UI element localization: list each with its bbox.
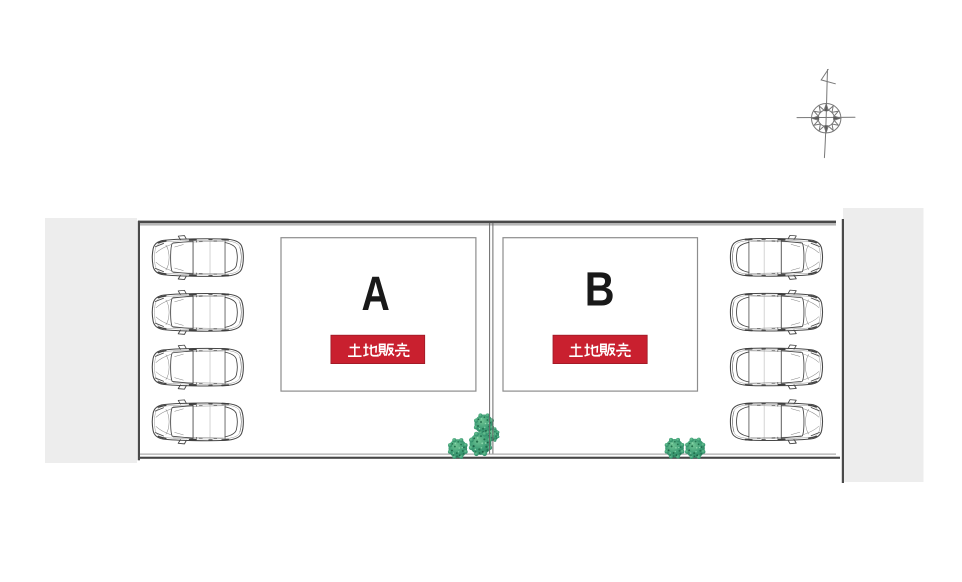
svg-text:A: A — [361, 268, 389, 321]
svg-text:B: B — [585, 263, 615, 316]
